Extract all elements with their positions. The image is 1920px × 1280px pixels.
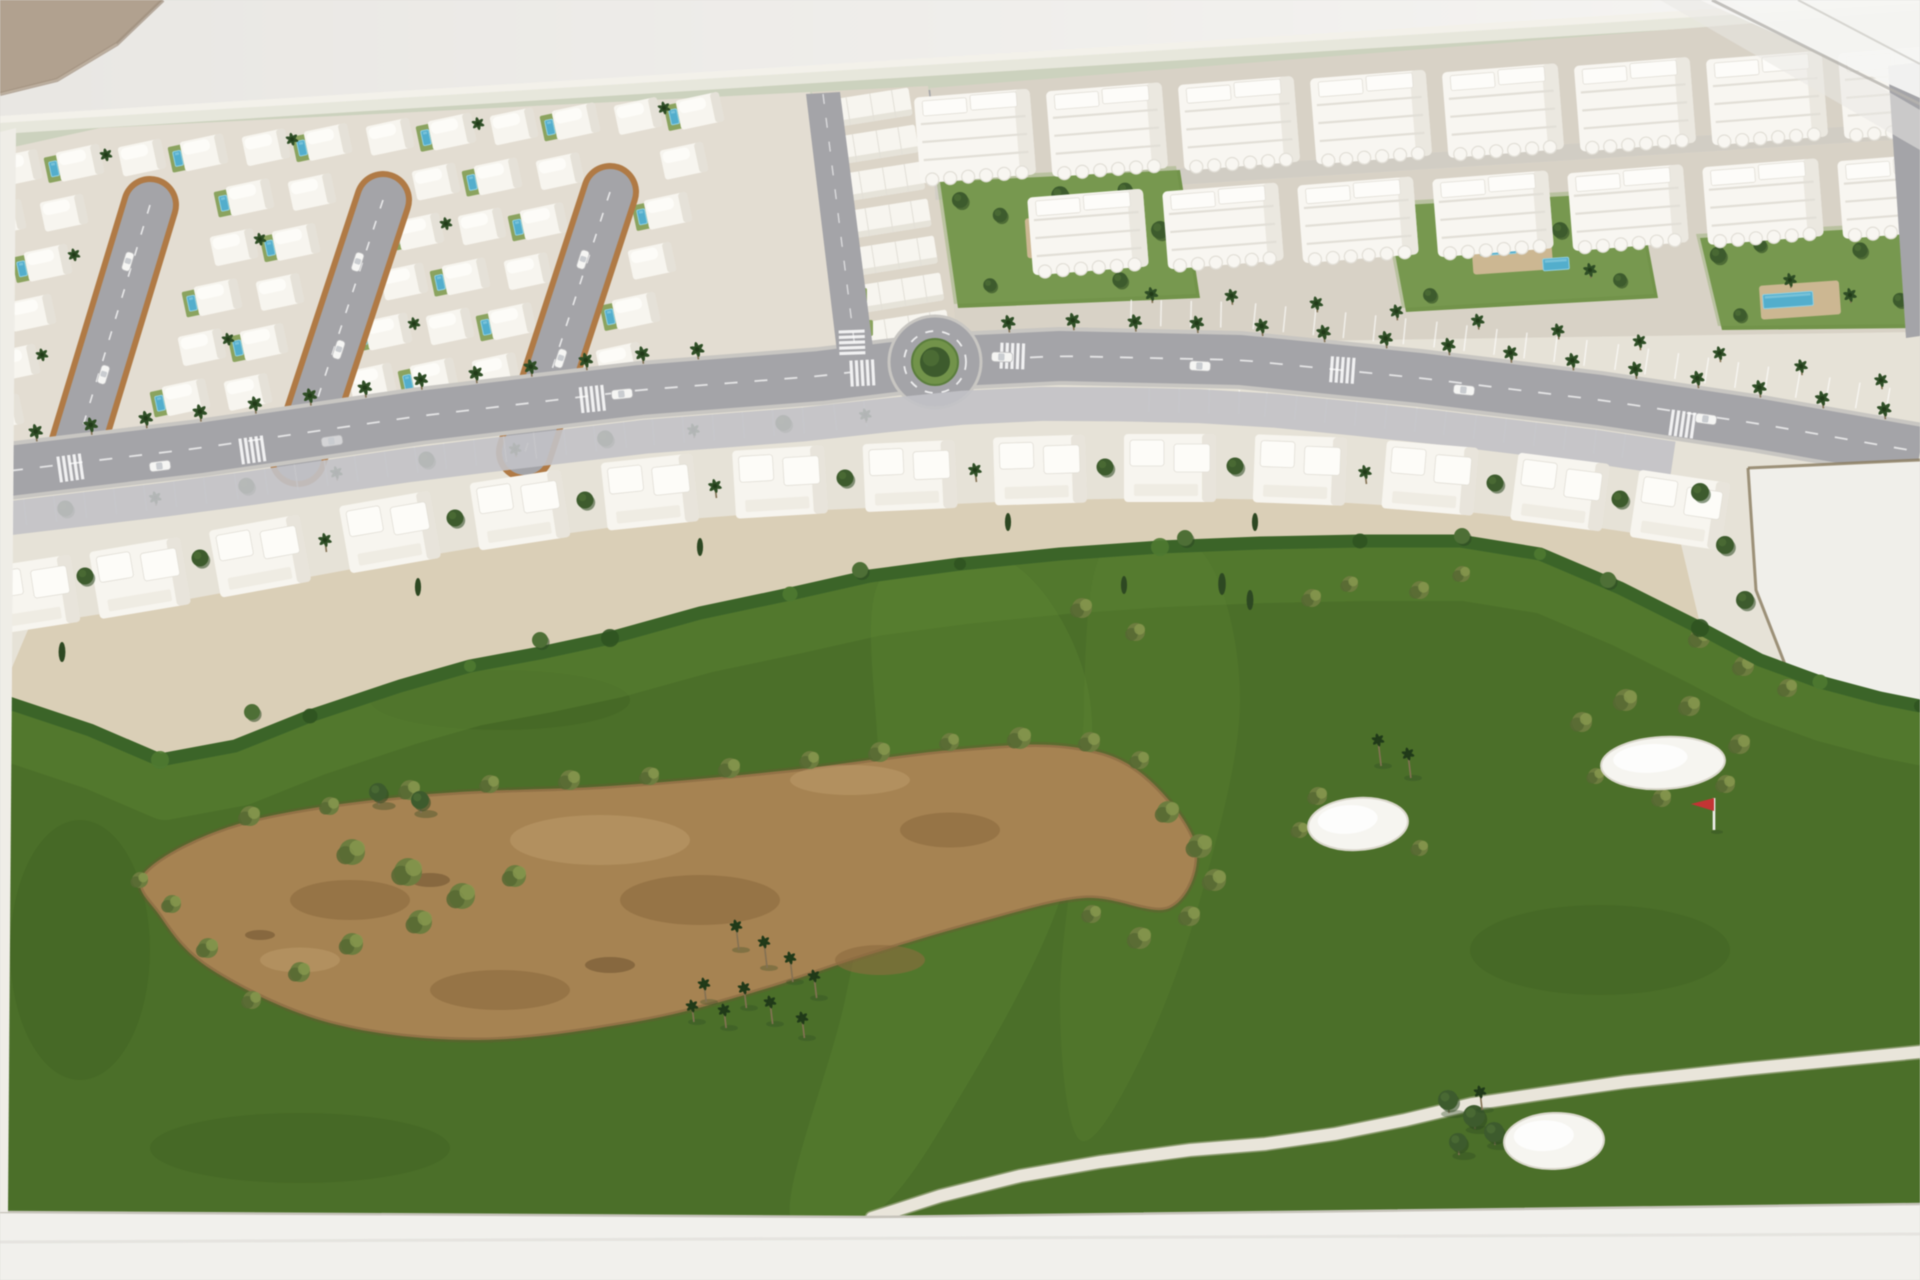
model-car [1189, 361, 1210, 372]
apartment-block [1702, 158, 1824, 248]
townhouse-duplex [1124, 434, 1216, 502]
apartment-block [914, 89, 1037, 187]
townhouse-duplex [1510, 452, 1610, 531]
cypress-icon [1005, 513, 1011, 531]
apartment-block [1297, 176, 1419, 266]
apartment-block [1574, 57, 1697, 155]
apartment-block [1442, 63, 1565, 161]
apartment-block [1046, 82, 1169, 180]
architectural-model-photo: Photograph of a white architectural scal… [0, 0, 1920, 1280]
cypress-icon [1252, 513, 1258, 531]
apartment-block [1178, 76, 1301, 174]
cypress-icon [1218, 573, 1225, 595]
apartment-block [1027, 189, 1149, 279]
apartment-block [1567, 164, 1689, 254]
model-car [991, 352, 1012, 362]
townhouse-duplex [1629, 470, 1730, 551]
apartment-block [1432, 170, 1554, 260]
cypress-icon [1121, 576, 1127, 594]
cypress-icon [1247, 590, 1254, 610]
model-car [611, 388, 633, 400]
townhouse-duplex [469, 469, 570, 550]
swimming-pool [1543, 257, 1570, 271]
model-scene-svg [0, 0, 1920, 1280]
base-edge [0, 1204, 1920, 1280]
townhouse-duplex [1381, 440, 1478, 515]
apartment-block [1162, 182, 1284, 272]
townhouse-duplex [1253, 434, 1348, 505]
townhouse-duplex [863, 440, 958, 512]
cypress-icon [415, 578, 421, 596]
townhouse-duplex [732, 445, 828, 518]
townhouse-duplex [993, 435, 1087, 506]
model-car [1453, 384, 1475, 396]
cypress-icon [59, 642, 66, 662]
cypress-icon [697, 538, 703, 556]
townhouse-duplex [601, 453, 700, 530]
swimming-pool [1763, 291, 1814, 308]
apartment-block [1310, 70, 1433, 168]
